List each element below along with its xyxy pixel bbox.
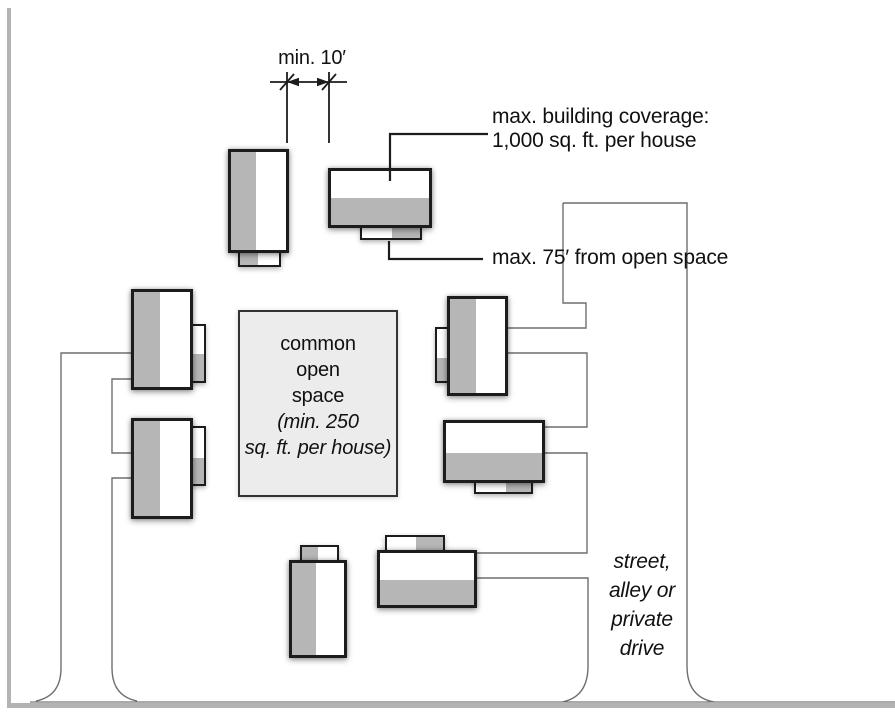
- open-space-note: (min. 250sq. ft. per house): [245, 409, 391, 461]
- site-plan-diagram: min. 10′max. building coverage:1,000 sq.…: [0, 0, 895, 716]
- coverage-label-line: max. building coverage:: [492, 105, 709, 129]
- setback-label-line: max. 75′ from open space: [492, 246, 728, 270]
- open-space-note-line: (min. 250: [245, 409, 391, 435]
- open-space-label-line: common: [280, 331, 356, 357]
- open-space-label-line: open: [280, 357, 356, 383]
- setback-leader: [389, 241, 483, 259]
- street-label-line: alley or: [609, 576, 675, 605]
- open-space-label-line: space: [280, 383, 356, 409]
- setback-label: max. 75′ from open space: [492, 246, 728, 270]
- min-gap-label-line: min. 10′: [278, 46, 346, 70]
- street-label: street,alley orprivatedrive: [609, 547, 675, 663]
- street-label-line: private: [609, 605, 675, 634]
- street-label-line: drive: [609, 634, 675, 663]
- open-space-note-line: sq. ft. per house): [245, 435, 391, 461]
- coverage-leader: [390, 134, 488, 181]
- street-label-line: street,: [609, 547, 675, 576]
- coverage-label-line: 1,000 sq. ft. per house: [492, 129, 709, 153]
- coverage-label: max. building coverage:1,000 sq. ft. per…: [492, 105, 709, 153]
- min-gap-label: min. 10′: [278, 46, 346, 70]
- linework-over-layer: [0, 0, 895, 716]
- open-space-label: commonopenspace: [280, 331, 356, 409]
